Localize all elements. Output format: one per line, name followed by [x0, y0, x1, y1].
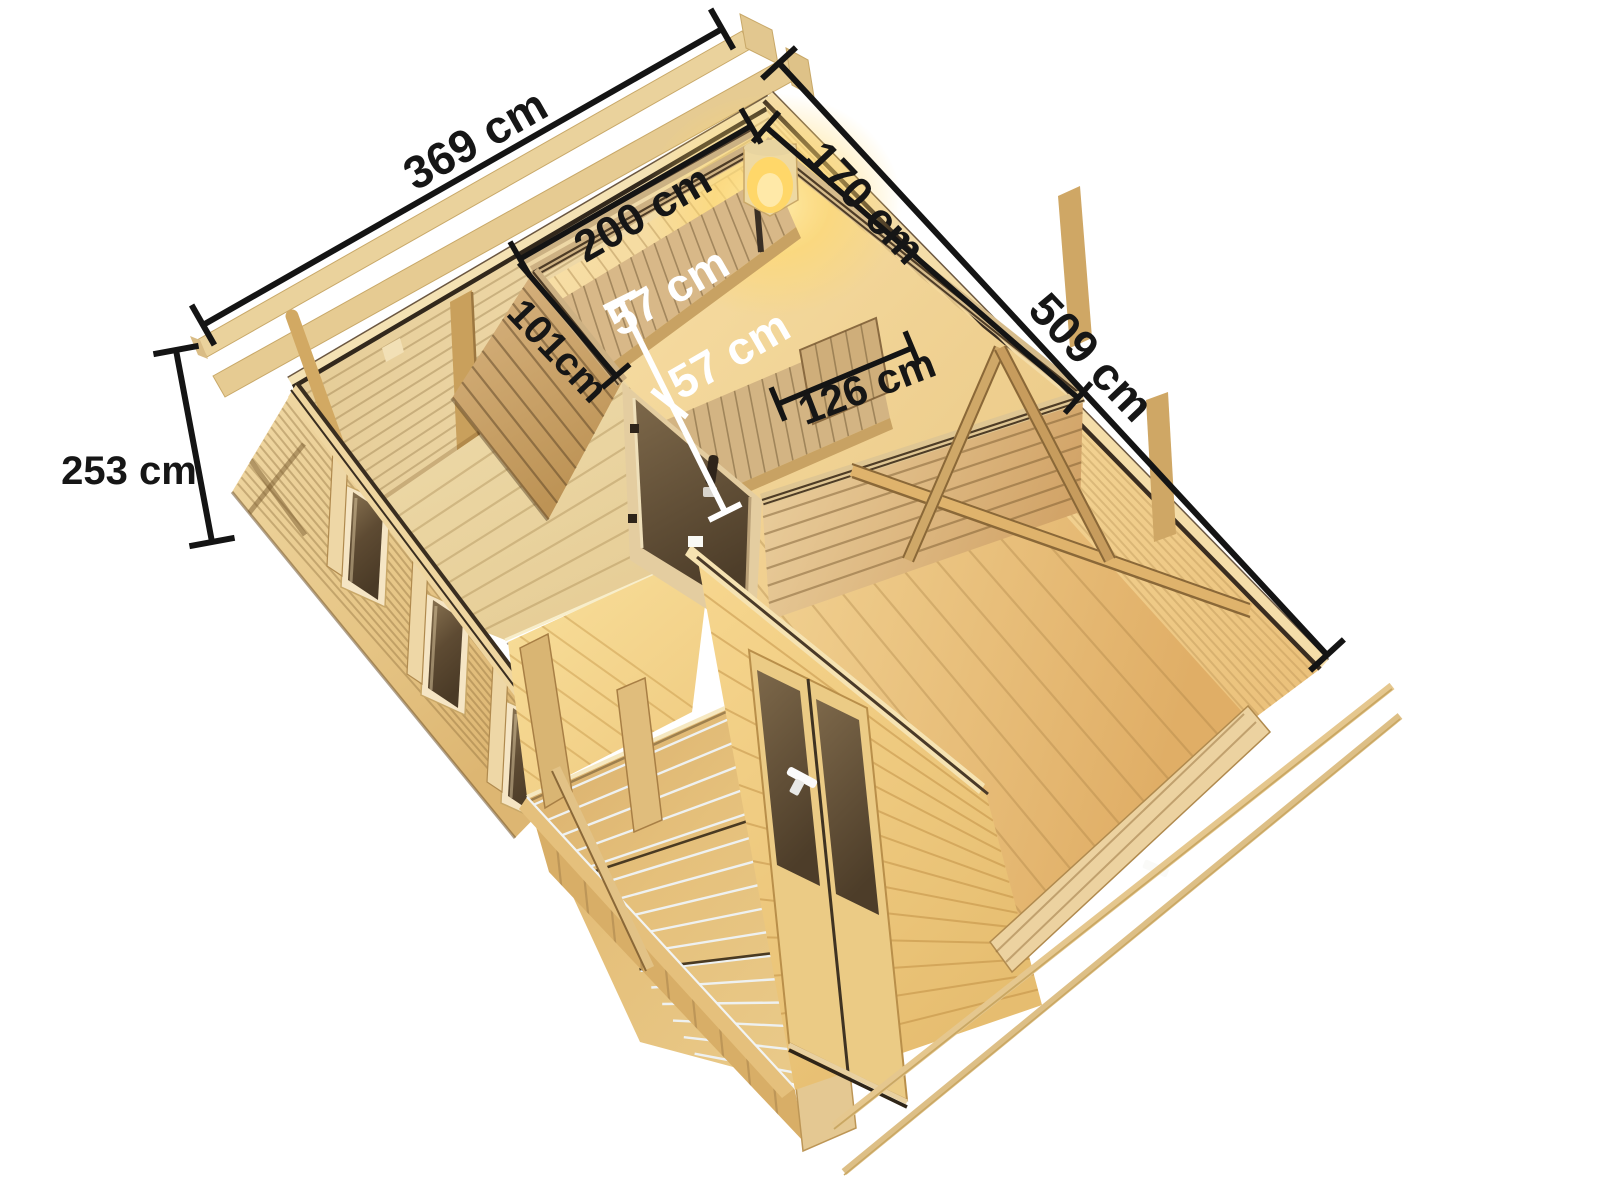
svg-text:253 cm: 253 cm [61, 449, 197, 493]
